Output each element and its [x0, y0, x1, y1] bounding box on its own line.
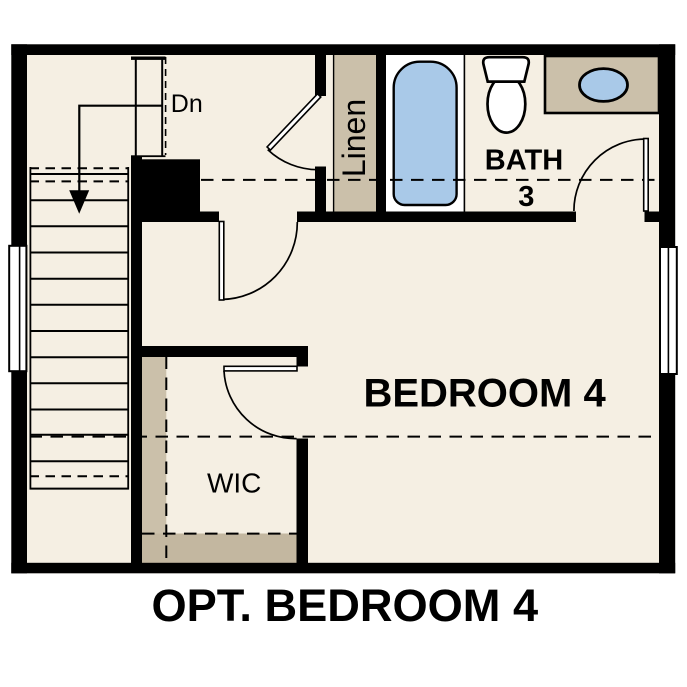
svg-text:Linen: Linen: [336, 99, 372, 177]
svg-text:OPT. BEDROOM 4: OPT. BEDROOM 4: [151, 580, 538, 631]
svg-text:BEDROOM 4: BEDROOM 4: [363, 371, 606, 415]
svg-text:WIC: WIC: [207, 467, 261, 498]
svg-text:Dn: Dn: [171, 90, 203, 118]
svg-text:3: 3: [518, 181, 534, 213]
svg-text:BATH: BATH: [485, 145, 563, 177]
